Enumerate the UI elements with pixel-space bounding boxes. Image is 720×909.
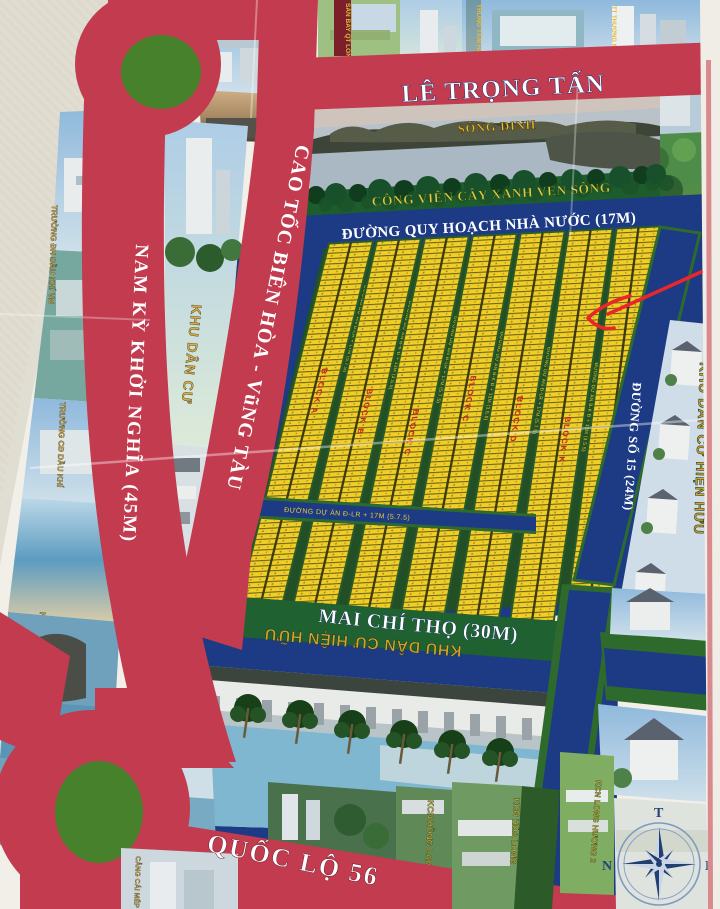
svg-text:T: T bbox=[654, 806, 664, 821]
svg-text:N: N bbox=[602, 859, 612, 874]
